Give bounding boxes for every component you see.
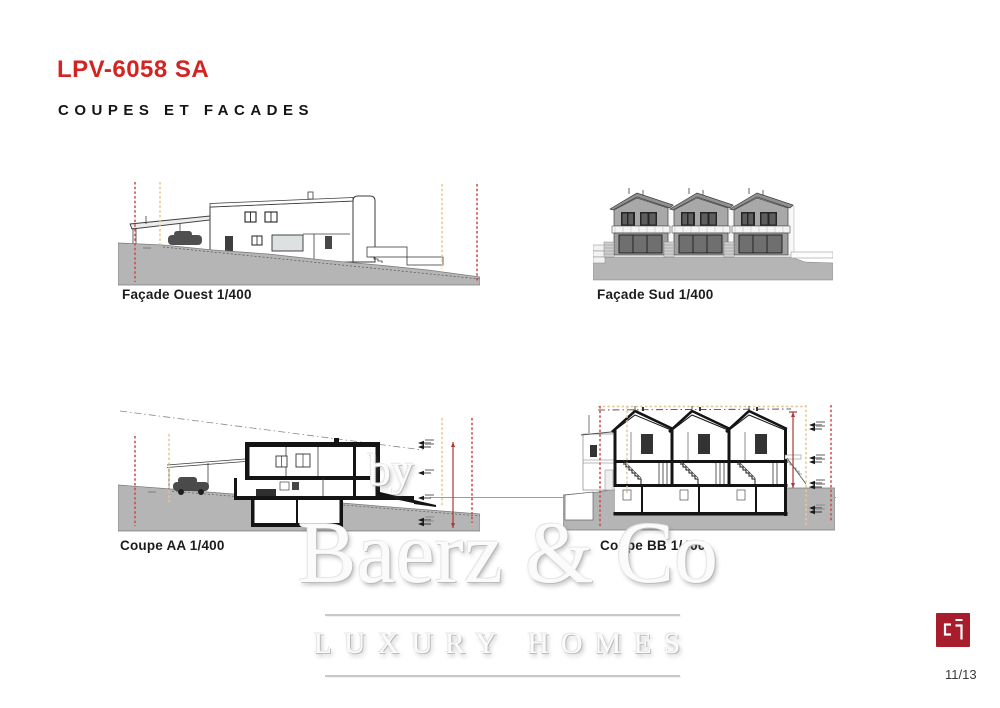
label-coupe-aa: Coupe AA 1/400 [120, 538, 225, 553]
drawing-facade-ouest [118, 174, 480, 287]
page-number: 11/13 [945, 667, 977, 682]
watermark-rule-top [325, 614, 680, 616]
plan-sheet: LPV-6058 SA COUPES ET FACADES [0, 0, 1000, 708]
watermark-rule-bottom [325, 675, 680, 677]
label-facade-ouest: Façade Ouest 1/400 [122, 287, 252, 302]
coupe-bb-graphic [563, 400, 835, 536]
facade-sud-graphic [593, 188, 833, 286]
logo-badge [936, 613, 970, 647]
height-limit-line [598, 409, 791, 410]
facade-ouest-graphic [118, 174, 480, 287]
drawing-coupe-aa [118, 406, 480, 538]
townhouses-south-elevation [610, 188, 794, 255]
townhouse-sections [612, 406, 788, 516]
label-facade-sud: Façade Sud 1/400 [597, 287, 714, 302]
coupe-aa-graphic [118, 406, 480, 538]
watermark-tagline: LUXURY HOMES [314, 627, 693, 661]
drawing-facade-sud [593, 188, 833, 286]
drawing-coupe-bb [563, 400, 835, 536]
dimension-line [789, 412, 797, 488]
page-title: LPV-6058 SA [57, 56, 209, 84]
page-subtitle: COUPES ET FACADES [58, 102, 314, 119]
exterior-stair [785, 455, 806, 484]
annex-elevation [581, 415, 616, 490]
label-coupe-bb: Coupe BB 1/400 [600, 538, 706, 553]
entry-door [225, 236, 233, 252]
picture-window [272, 235, 303, 251]
car [168, 231, 202, 245]
cp-logo-icon [936, 613, 970, 647]
